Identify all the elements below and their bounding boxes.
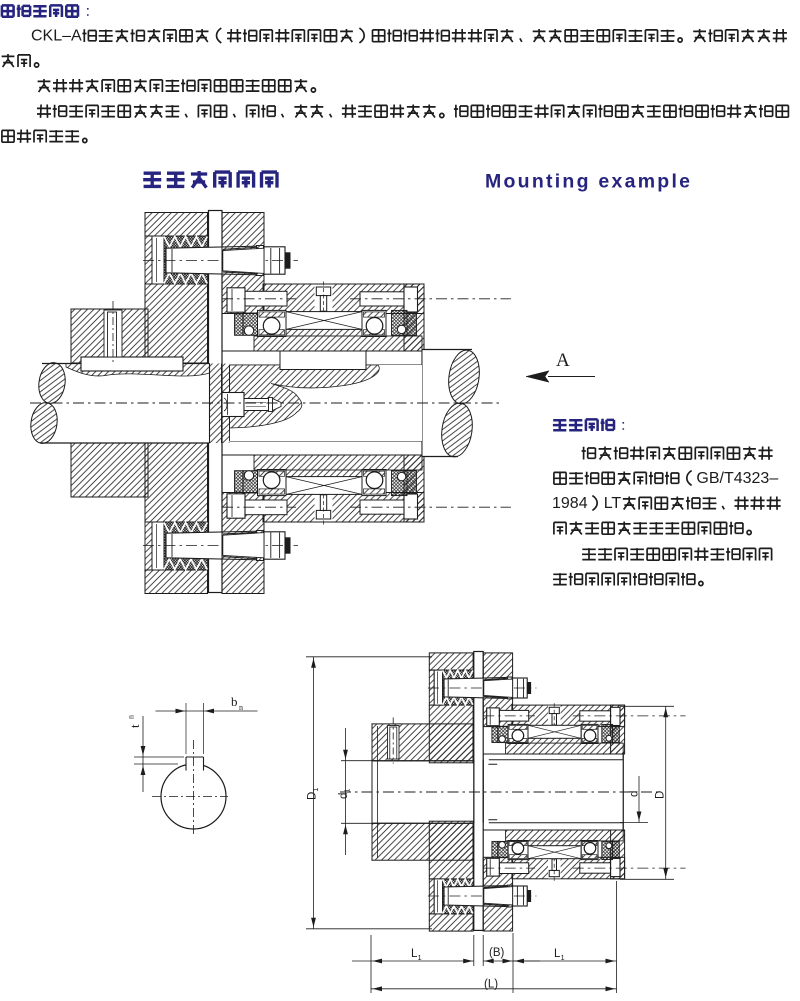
svg-text:(B): (B): [489, 947, 505, 959]
svg-text:A: A: [556, 350, 570, 371]
svg-text:GB/T4323–: GB/T4323–: [696, 470, 778, 487]
svg-text:CKL–A: CKL–A: [31, 28, 82, 45]
svg-text:t: t: [127, 724, 142, 728]
svg-text:D: D: [655, 791, 667, 799]
svg-text:d: d: [629, 791, 641, 797]
svg-text:(L): (L): [484, 979, 498, 991]
svg-text:b: b: [231, 694, 238, 709]
svg-text:n: n: [127, 715, 136, 719]
svg-text:1: 1: [561, 953, 565, 962]
svg-text:1984: 1984: [552, 495, 588, 512]
svg-text:LT: LT: [604, 495, 622, 512]
svg-text:n: n: [239, 703, 243, 712]
svg-text:1: 1: [418, 953, 422, 962]
